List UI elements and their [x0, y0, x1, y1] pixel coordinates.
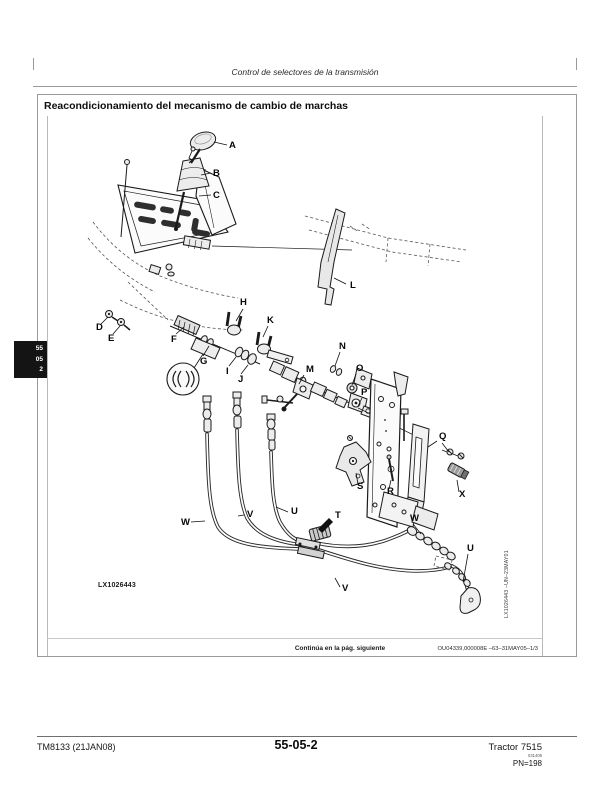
part-label-v-right: V: [342, 583, 349, 594]
part-label-f: F: [171, 334, 177, 345]
part-label-g: G: [200, 356, 207, 367]
tab-line-3: 2: [14, 365, 43, 376]
part-label-k: K: [267, 315, 274, 326]
exploded-diagram: A B C D E F G H I J K L M N O P Q R S T …: [0, 0, 612, 792]
cable-end-chain-u: [443, 561, 471, 587]
part-label-u-right: U: [467, 543, 474, 554]
part-label-a: A: [229, 140, 236, 151]
lever-s: [336, 436, 371, 487]
rail-bolt: [262, 396, 293, 403]
figure-id-caption: LX1026443: [98, 582, 136, 589]
cable-w-fitting: [203, 396, 211, 432]
manual-page: Control de selectores de la transmisión …: [0, 0, 612, 792]
part-label-j: J: [238, 374, 243, 385]
cable-v-fitting: [233, 392, 241, 428]
part-label-r: R: [387, 486, 394, 497]
part-label-p: P: [361, 387, 368, 398]
part-label-h: H: [240, 297, 247, 308]
hook-bracket: [460, 588, 480, 614]
bracket-q: [406, 424, 429, 512]
part-label-m: M: [306, 364, 314, 375]
part-label-v-left: V: [247, 509, 254, 520]
tab-line-1: 55: [14, 344, 43, 355]
plate-bolt: [401, 409, 408, 441]
plate-bolt-head: [125, 160, 130, 165]
part-label-w-left: W: [181, 517, 190, 528]
knob-screw: [191, 147, 195, 151]
part-label-x: X: [459, 489, 466, 500]
range-lever: [318, 209, 345, 305]
screw-x: [447, 462, 469, 479]
cable-end-chain-w: [406, 525, 457, 562]
shift-fork-k: [257, 332, 293, 364]
shift-cables: [203, 392, 480, 613]
part-label-d: D: [96, 322, 103, 333]
detail-magnifier: [167, 354, 203, 395]
bracket-screws: [442, 449, 464, 459]
part-label-b: B: [213, 168, 220, 179]
part-label-o: O: [356, 363, 363, 374]
bracket-assembly: [336, 368, 469, 530]
part-label-l: L: [350, 280, 356, 291]
tab-line-2: 05: [14, 355, 43, 366]
section-thumb-tab: 55 05 2: [14, 341, 47, 378]
part-label-c: C: [213, 190, 220, 201]
figure-side-caption: LX1026443 –UN–23MAY01: [504, 550, 510, 618]
part-label-w-right: W: [410, 513, 419, 524]
mount-bolts: [106, 311, 131, 331]
part-label-q: Q: [439, 431, 446, 442]
selector-arm-m: [282, 378, 314, 412]
shift-pattern-sticker: [183, 236, 210, 250]
part-label-u-left: U: [291, 506, 298, 517]
part-label-i: I: [226, 366, 229, 377]
part-label-e: E: [108, 333, 114, 344]
cable-clamp: [295, 538, 324, 559]
part-label-t: T: [335, 510, 341, 521]
cable-u-fitting: [267, 414, 275, 450]
part-label-s: S: [357, 481, 363, 492]
part-label-n: N: [339, 341, 346, 352]
